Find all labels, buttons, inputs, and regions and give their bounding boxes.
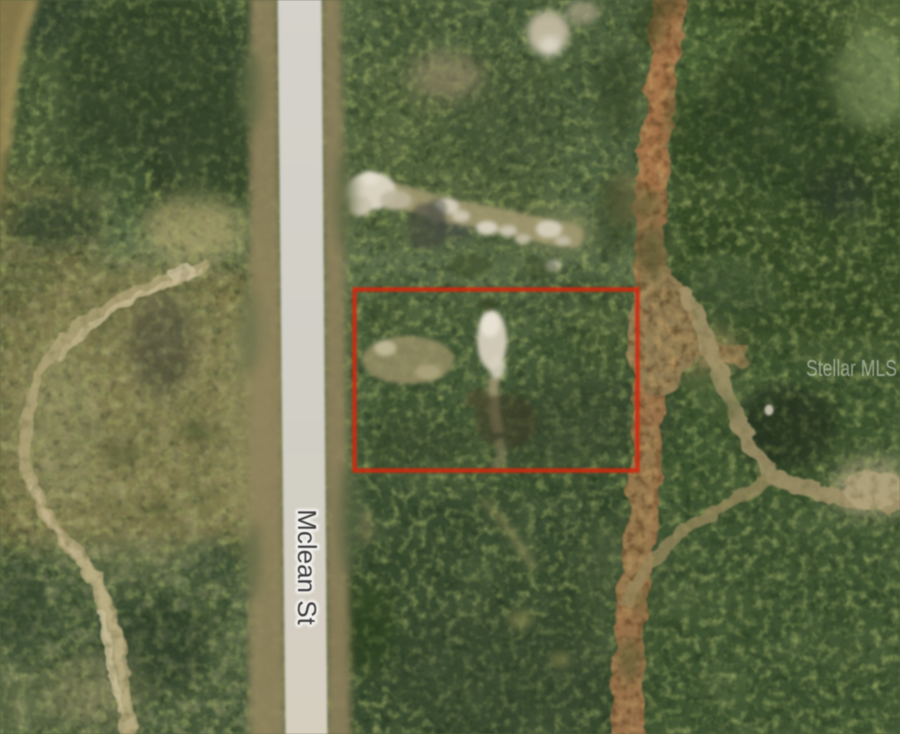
svg-text:Mclean St: Mclean St: [292, 509, 322, 625]
svg-text:Stellar MLS: Stellar MLS: [806, 355, 897, 381]
